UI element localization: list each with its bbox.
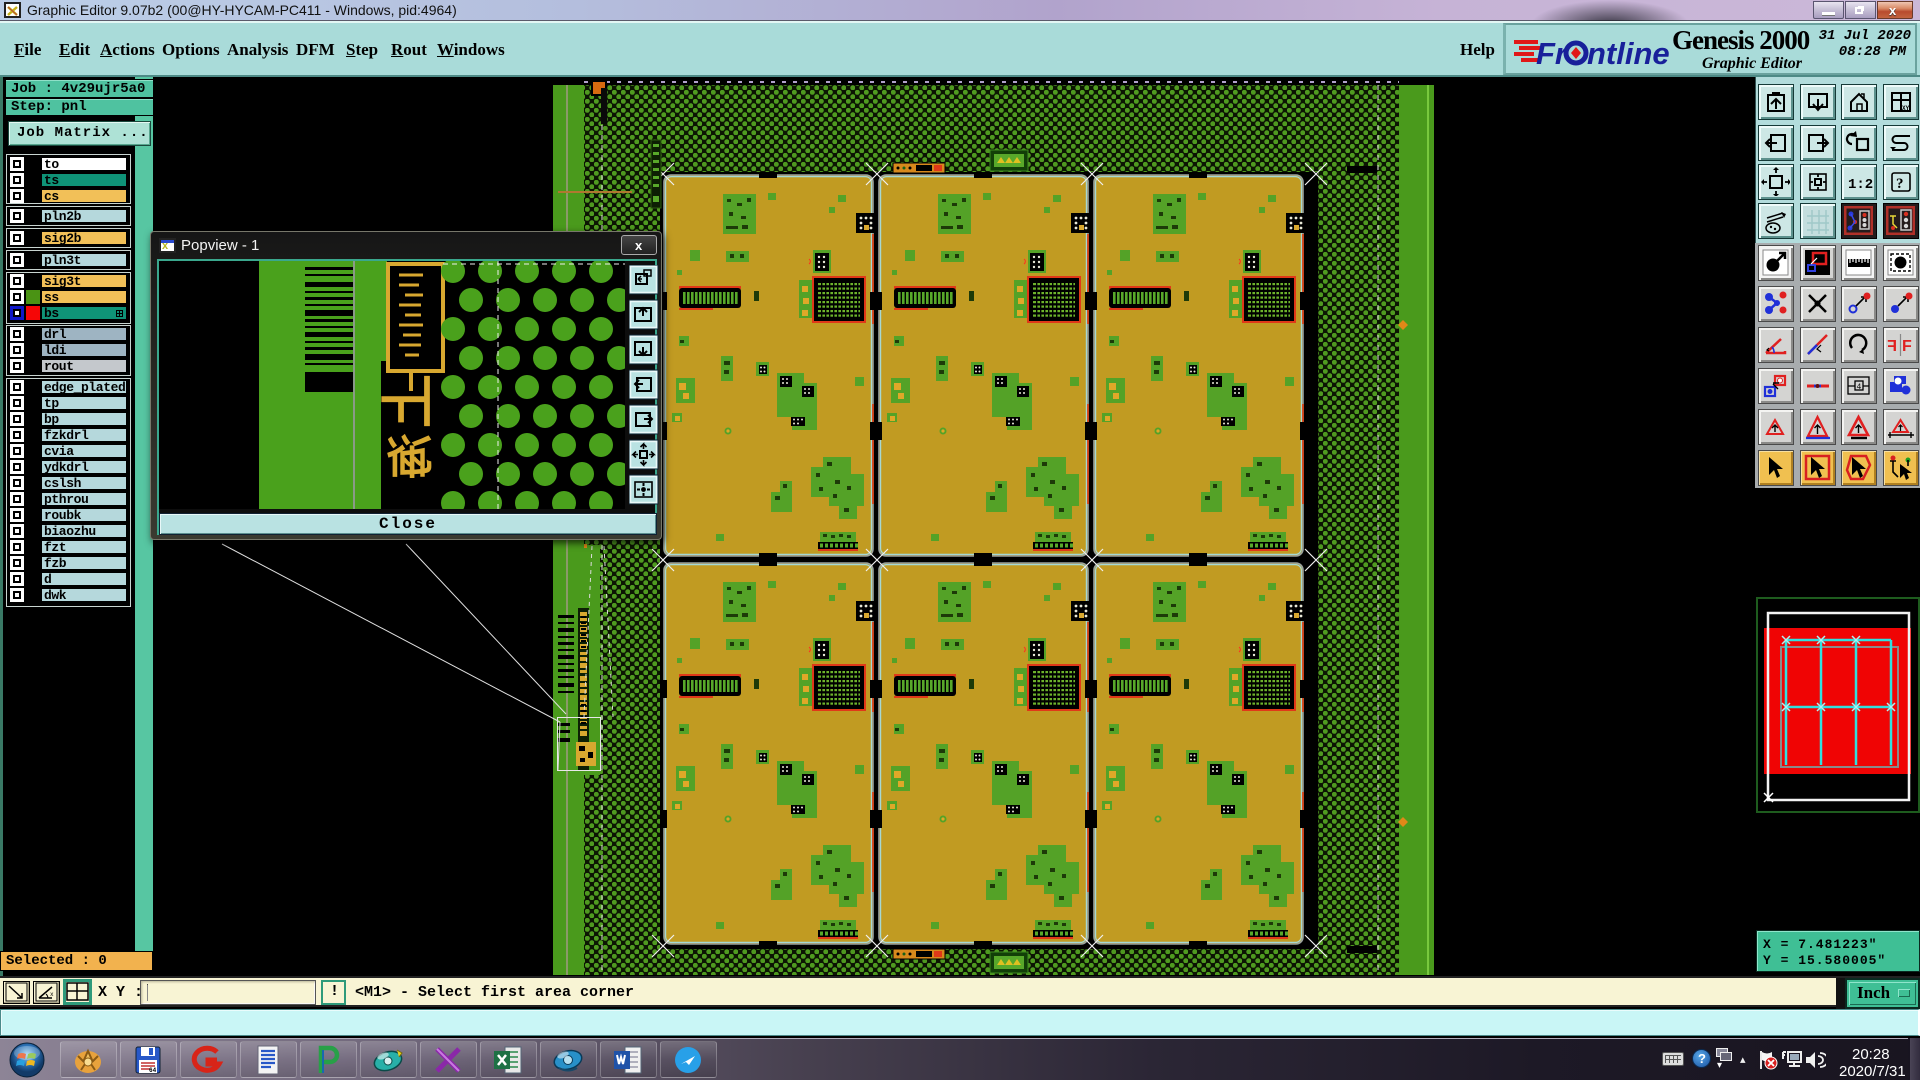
svg-text:XY: XY [1902, 105, 1910, 112]
svg-text:F: F [1887, 338, 1897, 355]
svg-text:4: 4 [1857, 383, 1862, 392]
svg-text:1:2: 1:2 [1848, 177, 1873, 193]
svg-text:64: 64 [149, 1067, 157, 1074]
svg-text:?: ? [1896, 176, 1904, 192]
svg-text:x: x [50, 991, 54, 998]
svg-text:海: 海 [386, 433, 437, 479]
svg-text:F: F [1902, 338, 1912, 355]
svg-text:ntline: ntline [1587, 36, 1670, 71]
